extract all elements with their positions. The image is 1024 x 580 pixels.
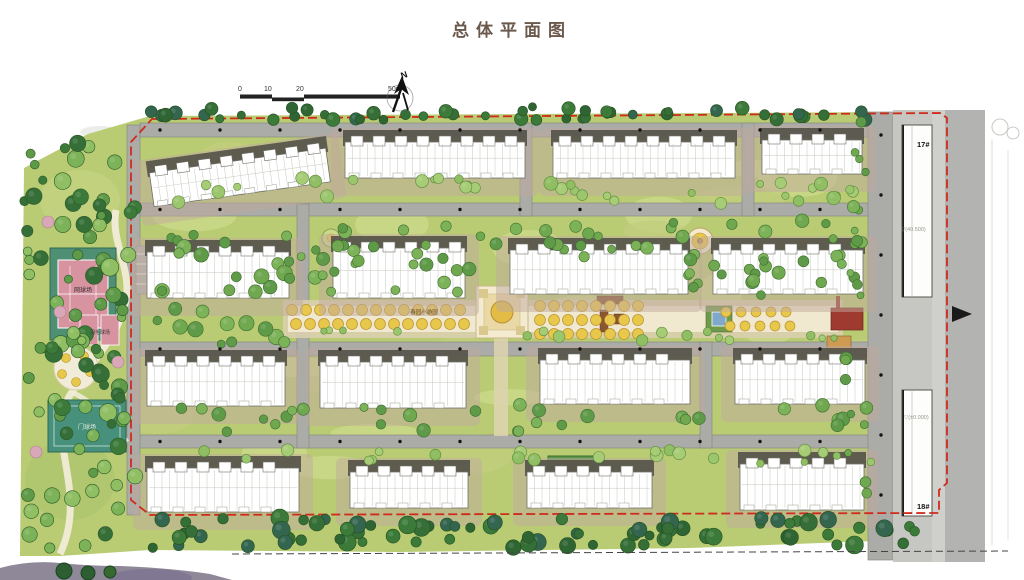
building-18-label: 18# (917, 502, 930, 511)
scale-tick-10: 10 (264, 86, 272, 93)
residential-building (331, 128, 539, 196)
scale-tick-0: 0 (238, 86, 242, 93)
south-context (0, 551, 1008, 580)
scale-bar: 0 10 20 50m (238, 86, 402, 101)
elevation-north-label: ▽(40.500) (901, 227, 926, 233)
residential-building (526, 346, 704, 422)
building-17-label: 17# (917, 140, 930, 149)
site-plan-canvas: 0 10 20 50m N 网球场 羽毛球场 门球场 春园小游园 17# 18#… (0, 0, 1024, 580)
residential-building (513, 458, 666, 526)
residential-building (306, 348, 480, 426)
gateball-court-label: 门球场 (78, 423, 96, 431)
residential-building (496, 236, 702, 312)
tennis-court-label: 网球场 (74, 286, 92, 294)
scale-tick-20: 20 (296, 86, 304, 93)
central-garden-label: 春园小游园 (410, 308, 438, 316)
page-title: 总体平面图 (0, 16, 1024, 41)
badminton-court-label: 羽毛球场 (90, 329, 110, 336)
residential-building (721, 346, 879, 422)
site-plan-page: { "title": "总体平面图", "north": { "label": … (0, 0, 1024, 580)
elevation-south-label: ▽(±0.000) (904, 415, 929, 421)
